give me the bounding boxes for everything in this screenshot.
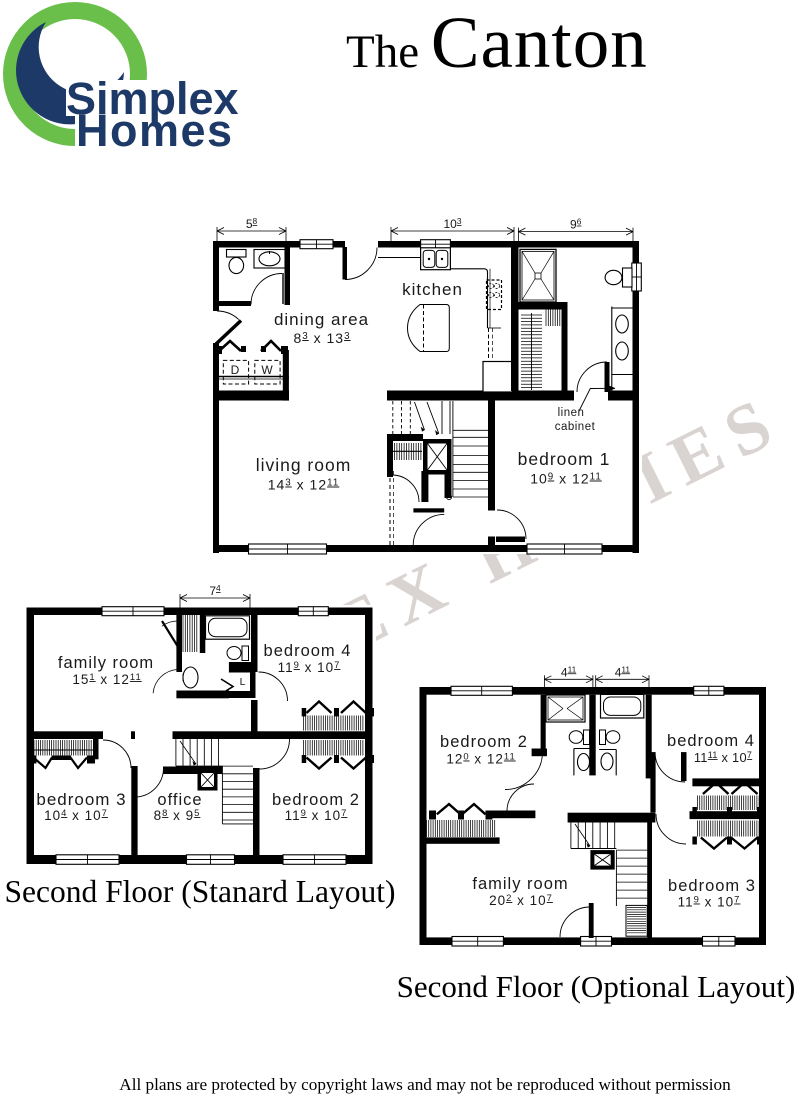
svg-text:119 x 107: 119 x 107	[678, 895, 741, 910]
svg-text:202 x 107: 202 x 107	[489, 893, 553, 908]
svg-text:D: D	[231, 363, 240, 377]
svg-text:bedroom 2: bedroom 2	[440, 733, 528, 751]
svg-text:bedroom 4: bedroom 4	[264, 642, 352, 660]
svg-text:office: office	[157, 791, 202, 809]
svg-text:linen: linen	[558, 407, 585, 419]
svg-text:bedroom 1: bedroom 1	[518, 449, 611, 469]
svg-text:Second Floor (Optional Layout): Second Floor (Optional Layout)	[397, 969, 796, 1004]
svg-text:83 x 133: 83 x 133	[293, 330, 350, 346]
svg-text:W: W	[261, 363, 273, 377]
svg-text:Homes: Homes	[76, 105, 234, 156]
svg-text:bedroom 3: bedroom 3	[36, 790, 126, 809]
svg-text:bedroom 2: bedroom 2	[272, 791, 360, 809]
svg-text:1111 x 107: 1111 x 107	[694, 750, 752, 765]
svg-text:119 x 107: 119 x 107	[285, 808, 348, 823]
svg-text:bedroom 4: bedroom 4	[667, 732, 755, 750]
svg-text:119 x 107: 119 x 107	[278, 660, 341, 675]
svg-text:kitchen: kitchen	[402, 280, 463, 299]
svg-text:104 x 107: 104 x 107	[44, 808, 108, 823]
svg-text:dining area: dining area	[274, 310, 369, 329]
svg-text:bedroom 3: bedroom 3	[668, 877, 756, 895]
svg-text:cabinet: cabinet	[555, 421, 596, 433]
svg-text:88 x 95: 88 x 95	[154, 808, 201, 823]
svg-text:family room: family room	[472, 875, 568, 893]
svg-text:family room: family room	[58, 654, 154, 672]
svg-text:Second Floor (Stanard Layout): Second Floor (Stanard Layout)	[4, 874, 395, 909]
svg-text:All plans are protected by cop: All plans are protected by copyright law…	[119, 1075, 731, 1094]
svg-text:L: L	[240, 676, 246, 688]
svg-text:living room: living room	[256, 455, 352, 475]
